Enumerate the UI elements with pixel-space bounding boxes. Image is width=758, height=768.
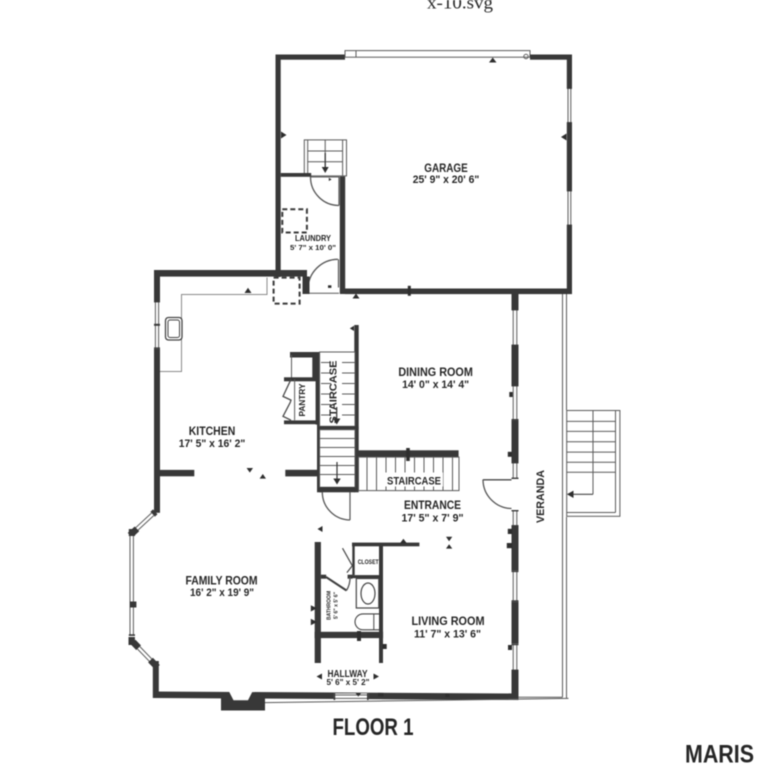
svg-text:5' 6" x 5' 2": 5' 6" x 5' 2" [327, 677, 370, 687]
svg-text:LAUNDRY: LAUNDRY [295, 233, 331, 243]
svg-text:17' 5" x 16' 2": 17' 5" x 16' 2" [179, 438, 246, 450]
svg-text:LIVING ROOM: LIVING ROOM [412, 614, 485, 628]
svg-text:KITCHEN: KITCHEN [189, 424, 236, 438]
svg-text:STAIRCASE: STAIRCASE [387, 476, 441, 488]
svg-text:DINING ROOM: DINING ROOM [398, 365, 473, 379]
svg-text:25' 9" x 20' 6": 25' 9" x 20' 6" [413, 174, 480, 186]
svg-text:VERANDA: VERANDA [535, 470, 547, 523]
svg-text:STAIRCASE: STAIRCASE [329, 360, 340, 424]
svg-text:MARIS: MARIS [685, 741, 754, 768]
svg-text:14' 0" x 14' 4": 14' 0" x 14' 4" [402, 379, 469, 391]
svg-text:5' 6" x 5' 6": 5' 6" x 5' 6" [334, 591, 340, 619]
svg-text:FAMILY ROOM: FAMILY ROOM [186, 574, 258, 588]
svg-text:11' 7" x 13' 6": 11' 7" x 13' 6" [414, 629, 481, 641]
svg-text:FLOOR 1: FLOOR 1 [333, 714, 414, 741]
svg-text:BATHROOM: BATHROOM [327, 591, 333, 620]
svg-text:CLOSET: CLOSET [358, 559, 379, 566]
svg-text:16' 2" x 19' 9": 16' 2" x 19' 9" [190, 587, 254, 599]
svg-text:PANTRY: PANTRY [297, 383, 307, 416]
svg-text:5' 7" x 10' 0": 5' 7" x 10' 0" [290, 243, 336, 252]
svg-text:GARAGE: GARAGE [424, 161, 468, 175]
svg-text:17' 5" x 7' 9": 17' 5" x 7' 9" [402, 513, 464, 525]
svg-text:ENTRANCE: ENTRANCE [404, 498, 461, 512]
svg-text:x-10.svg: x-10.svg [427, 0, 493, 13]
